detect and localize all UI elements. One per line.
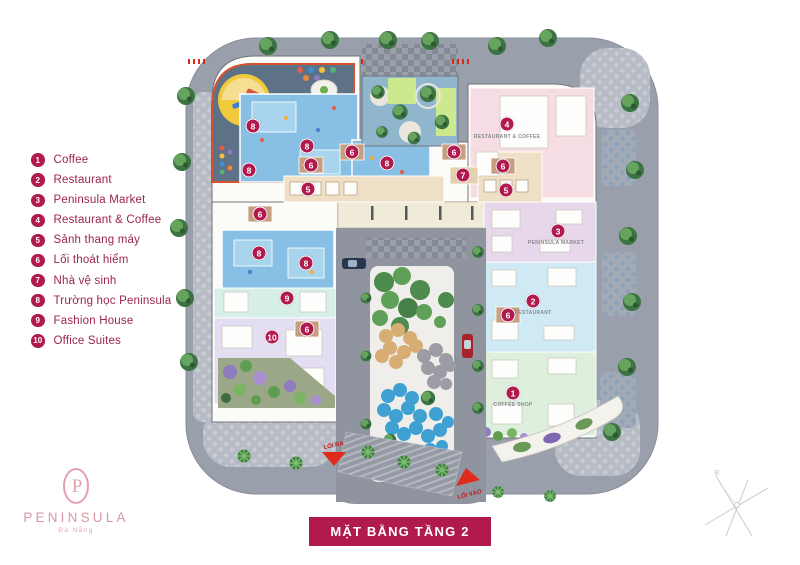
- legend-item-label: Peninsula Market: [54, 194, 146, 206]
- legend-number-badge: 3: [31, 194, 45, 208]
- legend-item: 3Peninsula Market: [31, 193, 171, 207]
- legend-item: 9Fashion House: [31, 314, 171, 328]
- legend-number-badge: 10: [31, 334, 45, 348]
- car-blue: [342, 258, 366, 269]
- legend-item: 10Office Suites: [31, 334, 171, 348]
- legend-number-badge: 5: [31, 234, 45, 248]
- legend-number-badge: 7: [31, 274, 45, 288]
- plan-marker-3: 3: [551, 224, 566, 239]
- plan-marker-8: 8: [380, 156, 395, 171]
- legend: 1Coffee2Restaurant3Peninsula Market4Rest…: [31, 153, 171, 354]
- plan-marker-5: 5: [499, 183, 514, 198]
- plan-marker-6: 6: [501, 308, 516, 323]
- garden-terrace: [362, 76, 458, 146]
- legend-item: 5Sảnh thang máy: [31, 233, 171, 247]
- corridor: [338, 202, 484, 228]
- plan-marker-6: 6: [300, 322, 315, 337]
- legend-item-label: Coffee: [54, 154, 89, 166]
- brand-monogram-icon: P: [63, 468, 89, 504]
- brand-logo: P PENINSULA Đà Nẵng: [18, 468, 134, 534]
- brand-name: PENINSULA: [18, 510, 134, 525]
- legend-number-badge: 8: [31, 294, 45, 308]
- legend-number-badge: 2: [31, 173, 45, 187]
- plan-marker-8: 8: [299, 256, 314, 271]
- plan-marker-5: 5: [301, 182, 316, 197]
- plan-marker-6: 6: [345, 145, 360, 160]
- legend-item-label: Restaurant: [54, 174, 112, 186]
- plan-marker-9: 9: [280, 291, 295, 306]
- room-label: RESTAURANT & COFFEE: [474, 134, 540, 140]
- legend-item: 6Lối thoát hiểm: [31, 253, 171, 267]
- legend-number-badge: 6: [31, 254, 45, 268]
- plan-marker-4: 4: [500, 117, 515, 132]
- legend-number-badge: 1: [31, 153, 45, 167]
- plan-marker-2: 2: [526, 294, 541, 309]
- brand-subtitle: Đà Nẵng: [18, 527, 134, 534]
- legend-item-label: Trường học Peninsula: [54, 295, 172, 307]
- legend-number-badge: 4: [31, 214, 45, 228]
- plan-marker-10: 10: [265, 330, 280, 345]
- plan-marker-8: 8: [242, 163, 257, 178]
- room-label: COFFEE SHOP: [493, 402, 532, 408]
- legend-item-label: Nhà vệ sinh: [54, 275, 117, 287]
- plan-marker-8: 8: [252, 246, 267, 261]
- title-banner: MẶT BẰNG TẦNG 2: [309, 517, 491, 546]
- car-red: [462, 334, 473, 358]
- legend-item: 4Restaurant & Coffee: [31, 213, 171, 227]
- compass-icon: B: [705, 470, 768, 536]
- plan-marker-8: 8: [300, 139, 315, 154]
- legend-number-badge: 9: [31, 314, 45, 328]
- page-title: MẶT BẰNG TẦNG 2: [330, 524, 469, 539]
- plan-marker-1: 1: [506, 386, 521, 401]
- legend-item-label: Office Suites: [54, 335, 122, 347]
- legend-item: 2Restaurant: [31, 173, 171, 187]
- plan-marker-6: 6: [253, 207, 268, 222]
- legend-item: 8Trường học Peninsula: [31, 294, 171, 308]
- plan-marker-7: 7: [456, 168, 471, 183]
- plan-marker-8: 8: [246, 119, 261, 134]
- legend-item: 1Coffee: [31, 153, 171, 167]
- legend-item-label: Restaurant & Coffee: [54, 214, 162, 226]
- plan-marker-6: 6: [304, 158, 319, 173]
- legend-item-label: Lối thoát hiểm: [54, 254, 129, 266]
- compass-north-label: B: [715, 470, 720, 477]
- legend-item-label: Sảnh thang máy: [54, 234, 141, 246]
- plan-marker-6: 6: [496, 159, 511, 174]
- room-label: RESTAURANT: [514, 310, 551, 316]
- legend-item-label: Fashion House: [54, 315, 134, 327]
- room-label: PENINSULA MARKET: [528, 240, 584, 246]
- page: LỐI RA LỐI VÀO: [0, 0, 800, 565]
- plan-marker-6: 6: [447, 145, 462, 160]
- legend-item: 7Nhà vệ sinh: [31, 273, 171, 287]
